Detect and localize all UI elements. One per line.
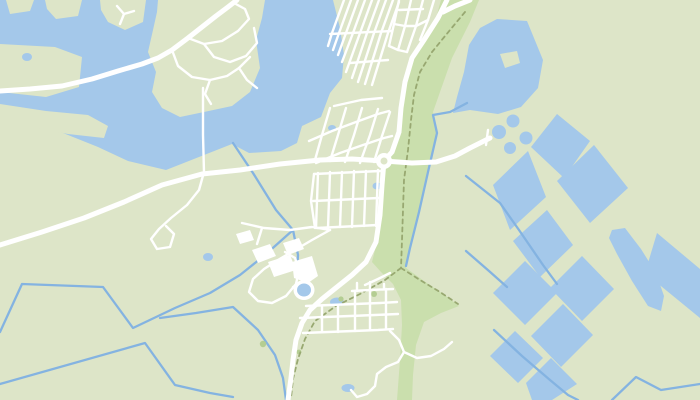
tree: [338, 296, 343, 301]
tree: [260, 341, 266, 347]
pond: [504, 142, 516, 154]
street: [203, 88, 204, 172]
roundabout-island: [381, 158, 388, 165]
tree: [371, 291, 377, 297]
pond: [520, 132, 533, 145]
street: [399, 9, 423, 10]
pond: [22, 53, 32, 61]
map-canvas[interactable]: [0, 0, 700, 400]
pond: [297, 284, 311, 297]
pond: [507, 115, 520, 128]
pond: [203, 253, 213, 261]
pond: [492, 125, 506, 139]
map-tile[interactable]: [0, 0, 700, 400]
